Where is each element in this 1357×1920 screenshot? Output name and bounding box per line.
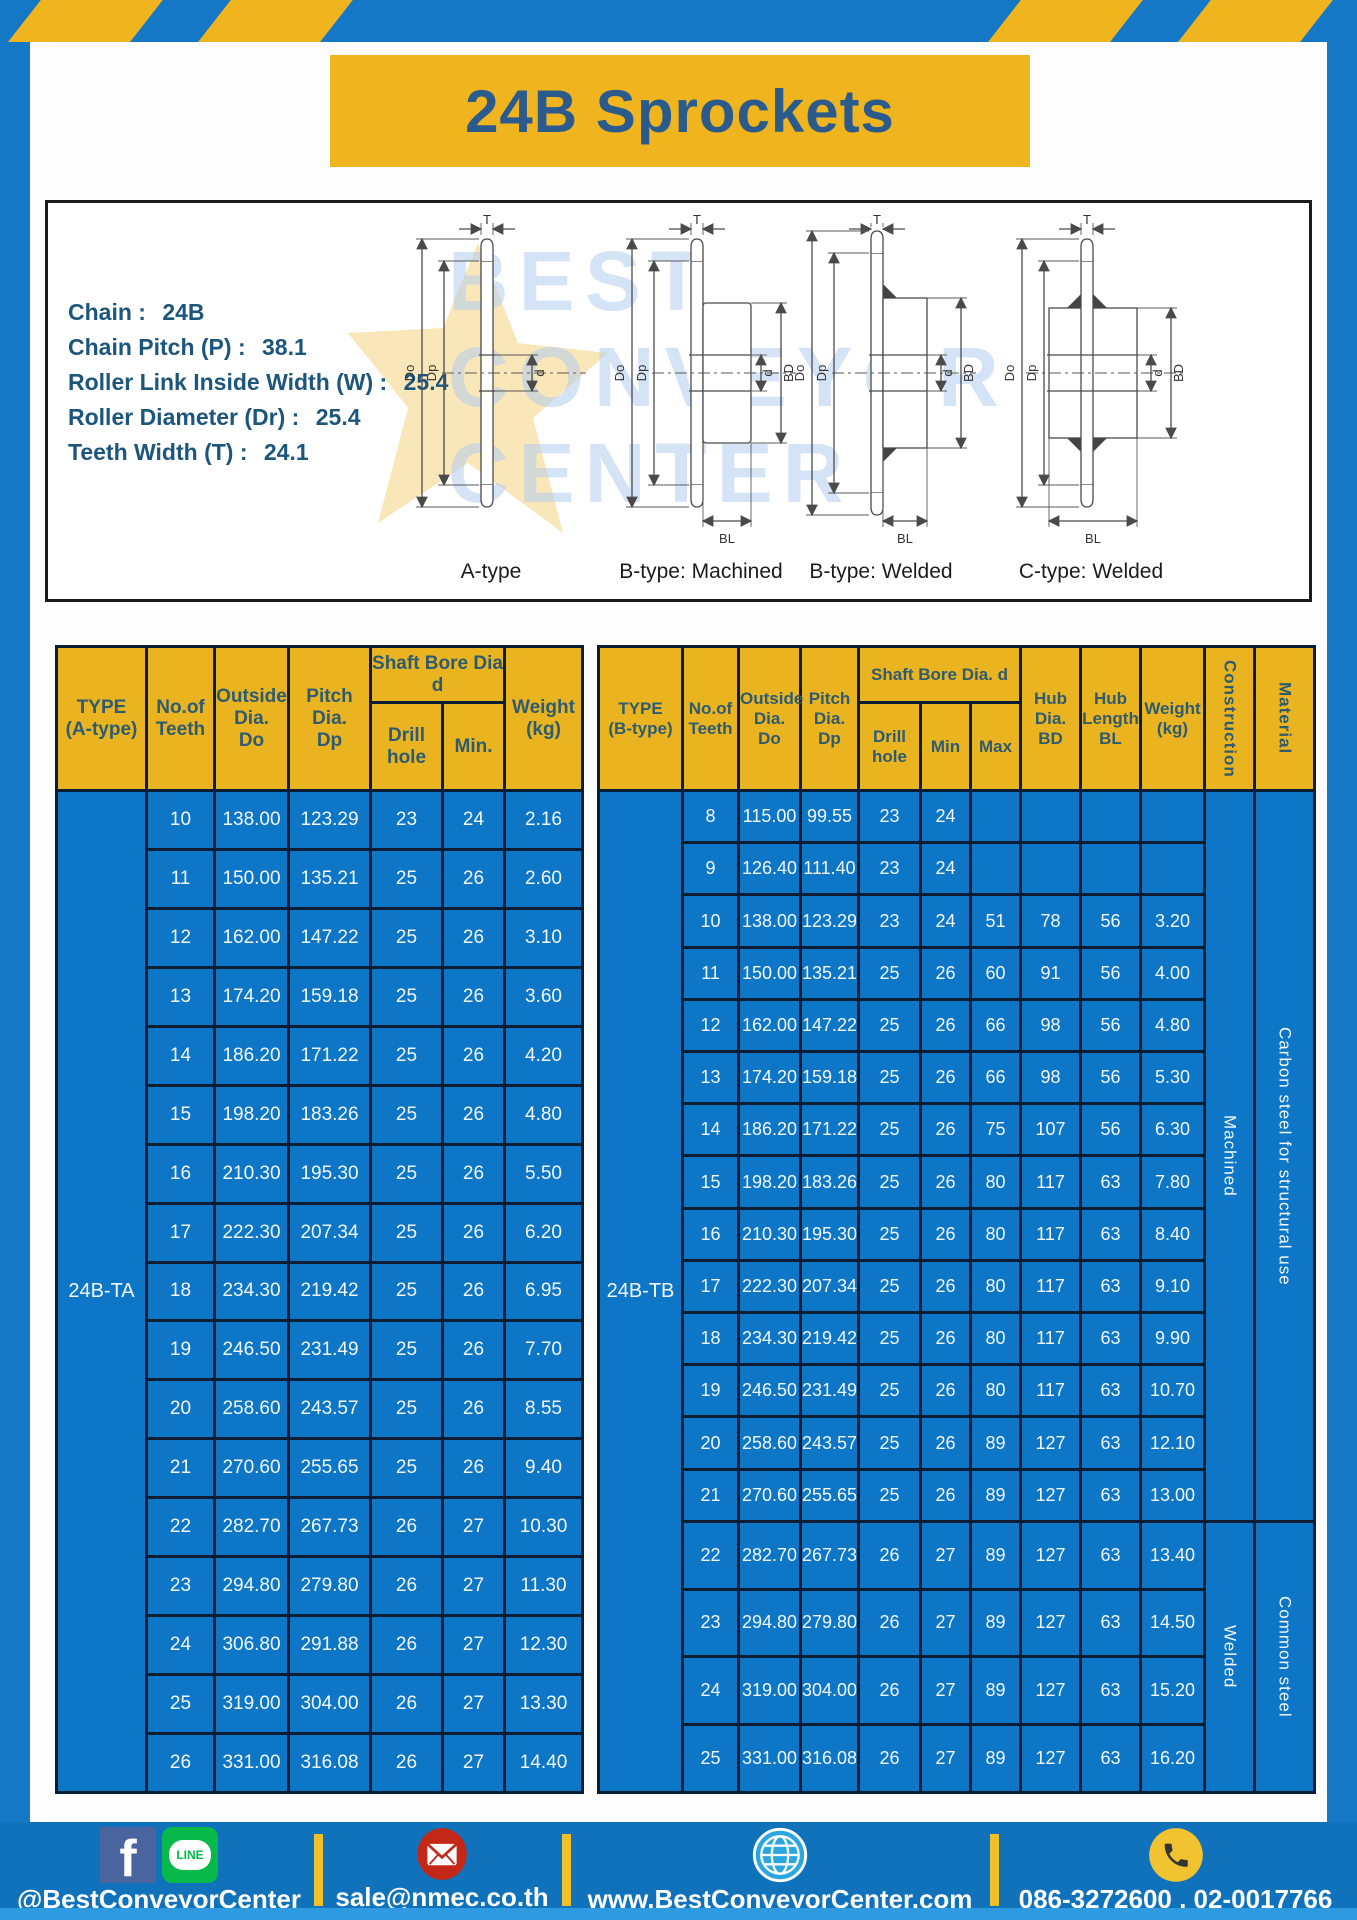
table-cell: 14.40 [505,1734,583,1793]
sprocket-diagram-icon: TDoDpdBDBL [596,213,806,558]
table-cell: 25 [859,1313,921,1365]
table-cell: 107 [1021,1104,1081,1156]
sprocket-diagram-icon: TDoDpdBDBL [986,213,1196,558]
table-cell: 89 [971,1469,1021,1521]
col-header-teeth: No.of Teeth [683,647,739,791]
globe-icon[interactable] [752,1827,808,1883]
table-cell: 331.00 [739,1725,801,1793]
table-cell: 25 [371,1262,443,1321]
table-cell: 26 [921,1469,971,1521]
table-cell: 186.20 [739,1104,801,1156]
table-cell: 14 [683,1104,739,1156]
sprocket-drawing-c-welded: TDoDpdBDBL C-type: Welded [986,213,1196,584]
table-cell: 25 [371,1085,443,1144]
table-cell: 115.00 [739,791,801,843]
table-cell: 26 [443,1321,505,1380]
drawing-caption: C-type: Welded [986,560,1196,584]
col-header-hub-length: Hub Length BL [1081,647,1141,791]
hazard-stripe [1178,0,1333,42]
table-cell: 6.95 [505,1262,583,1321]
table-cell: 26 [921,947,971,999]
table-cell: 304.00 [289,1675,371,1734]
col-header-material: Material [1255,647,1315,791]
table-cell: 27 [443,1616,505,1675]
table-cell: 3.20 [1141,895,1205,947]
table-cell: 24 [921,791,971,843]
table-cell: 26 [921,1260,971,1312]
table-cell: 123.29 [801,895,859,947]
table-cell: 258.60 [739,1417,801,1469]
table-cell: 18 [147,1262,215,1321]
svg-text:Dp: Dp [1024,365,1039,382]
spec-value: 38.1 [262,334,307,360]
table-cell: 13.00 [1141,1469,1205,1521]
table-cell: 267.73 [289,1498,371,1557]
col-header-teeth: No.of Teeth [147,647,215,791]
line-icon[interactable]: LINE [162,1827,218,1883]
table-cell: 60 [971,947,1021,999]
table-cell: 56 [1081,1104,1141,1156]
table-cell: 127 [1021,1657,1081,1725]
facebook-icon[interactable]: f [100,1827,156,1883]
table-cell: 26 [371,1616,443,1675]
table-cell: 222.30 [215,1203,289,1262]
table-cell: 25 [371,967,443,1026]
sprocket-diagram-icon: TDoDpd [386,213,596,558]
table-cell: 111.40 [801,843,859,895]
table-cell: 8 [683,791,739,843]
table-cell: 117 [1021,1208,1081,1260]
table-cell: 23 [859,791,921,843]
table-cell: 234.30 [215,1262,289,1321]
table-cell: 11 [683,947,739,999]
table-cell: 51 [971,895,1021,947]
page-title-text: 24B Sprockets [465,77,895,146]
table-cell: 12.10 [1141,1417,1205,1469]
svg-text:d: d [532,369,547,376]
col-header-shaft-bore: Shaft Bore Dia. d [859,647,1021,703]
table-cell: 20 [683,1417,739,1469]
table-cell: 66 [971,999,1021,1051]
table-cell: 246.50 [215,1321,289,1380]
table-cell: 117 [1021,1313,1081,1365]
table-cell: 17 [147,1203,215,1262]
table-cell: 25 [859,1365,921,1417]
table-cell: 10 [683,895,739,947]
table-cell: 25 [371,1026,443,1085]
table-cell: 26 [147,1734,215,1793]
table-cell: 219.42 [801,1313,859,1365]
sprocket-drawing-b-machined: TDoDpdBDBL B-type: Machined [596,213,806,584]
table-cell: 13 [683,1052,739,1104]
table-cell: 19 [683,1365,739,1417]
table-cell: 25 [683,1725,739,1793]
col-header-max: Max [971,703,1021,791]
table-cell: 27 [443,1498,505,1557]
table-cell: 26 [921,999,971,1051]
type-cell: 24B-TB [599,791,683,1793]
table-cell: 159.18 [289,967,371,1026]
table-cell: 294.80 [215,1557,289,1616]
drawing-caption: B-type: Machined [596,560,806,584]
table-cell: 127 [1021,1417,1081,1469]
table-cell: 14 [147,1026,215,1085]
table-cell: 23 [371,791,443,850]
table-cell: 26 [443,1203,505,1262]
table-cell: 219.42 [289,1262,371,1321]
hazard-stripe [8,0,163,42]
table-cell: 25 [371,908,443,967]
table-cell: 26 [443,1026,505,1085]
table-cell: 25 [371,1321,443,1380]
sprocket-diagram-icon: TDoDpdBDBL [776,213,986,558]
table-cell: 162.00 [739,999,801,1051]
table-cell: 26 [921,1417,971,1469]
table-cell: 25 [147,1675,215,1734]
col-header-drill-hole: Drill hole [371,703,443,791]
table-cell: 10.30 [505,1498,583,1557]
table-cell: 25 [859,1208,921,1260]
table-cell: 25 [859,1417,921,1469]
page-title: 24B Sprockets [330,55,1030,167]
table-cell: 127 [1021,1589,1081,1657]
table-row: 24B-TA10138.00123.2923242.16 [57,791,583,850]
table-cell: 23 [147,1557,215,1616]
table-cell: 234.30 [739,1313,801,1365]
table-cell: 9.10 [1141,1260,1205,1312]
table-cell: 24 [443,791,505,850]
table-cell: 195.30 [801,1208,859,1260]
table-cell: 89 [971,1521,1021,1589]
table-cell: 210.30 [739,1208,801,1260]
table-cell: 319.00 [215,1675,289,1734]
table-cell: 3.10 [505,908,583,967]
table-cell: 186.20 [215,1026,289,1085]
table-cell: 319.00 [739,1657,801,1725]
table-row: 22282.70267.732627891276313.40WeldedComm… [599,1521,1315,1589]
table-cell: 25 [859,1260,921,1312]
svg-text:Do: Do [1002,365,1017,382]
table-cell: 198.20 [739,1156,801,1208]
table-cell: 26 [921,1313,971,1365]
table-cell: 13 [147,967,215,1026]
table-cell: 14.50 [1141,1589,1205,1657]
table-cell: 63 [1081,1156,1141,1208]
sprocket-drawing-a-type: TDoDpd A-type [386,213,596,584]
table-cell: 17 [683,1260,739,1312]
table-cell: 27 [443,1675,505,1734]
table-cell: 11.30 [505,1557,583,1616]
table-cell: 147.22 [801,999,859,1051]
spec-value: 24B [162,299,204,325]
table-cell: 267.73 [801,1521,859,1589]
table-cell: 2.16 [505,791,583,850]
table-cell: 56 [1081,999,1141,1051]
table-cell: 25 [371,1203,443,1262]
spec-value: 24.1 [264,439,309,465]
table-cell: 27 [921,1589,971,1657]
table-cell: 63 [1081,1417,1141,1469]
table-cell: 7.80 [1141,1156,1205,1208]
table-cell: 270.60 [215,1439,289,1498]
table-cell: 24 [921,895,971,947]
table-cell: 4.80 [505,1085,583,1144]
table-cell: 127 [1021,1469,1081,1521]
svg-text:BL: BL [1085,531,1101,546]
table-cell: 63 [1081,1469,1141,1521]
table-cell: 26 [921,1156,971,1208]
table-cell: 12.30 [505,1616,583,1675]
table-cell: 23 [859,895,921,947]
spec-label: Roller Diameter (Dr) [68,404,285,430]
footer-social-section: f LINE @BestConveyorCenter [0,1822,318,1908]
table-cell: 26 [921,1052,971,1104]
svg-text:Do: Do [792,365,807,382]
table-cell: 26 [443,849,505,908]
table-cell: 63 [1081,1657,1141,1725]
col-header-outside-dia: Outside Dia. Do [215,647,289,791]
material-cell: Carbon steel for structural use [1255,791,1315,1522]
table-cell: 22 [683,1521,739,1589]
diagram-panel: BEST CONVEYOR CENTER Chain : 24BChain Pi… [45,200,1312,602]
table-cell [971,843,1021,895]
table-cell: 24 [683,1657,739,1725]
table-cell: 80 [971,1313,1021,1365]
table-cell: 6.20 [505,1203,583,1262]
table-cell: 138.00 [739,895,801,947]
svg-text:BL: BL [719,531,735,546]
table-cell: 13.30 [505,1675,583,1734]
table-cell: 231.49 [289,1321,371,1380]
drawing-caption: B-type: Welded [776,560,986,584]
table-cell: 13.40 [1141,1521,1205,1589]
table-cell: 89 [971,1589,1021,1657]
table-cell: 26 [921,1104,971,1156]
table-cell: 25 [371,1380,443,1439]
hazard-stripe [988,0,1143,42]
top-hazard-bar [0,0,1357,42]
table-cell: 9.90 [1141,1313,1205,1365]
table-cell: 12 [147,908,215,967]
table-cell: 18 [683,1313,739,1365]
table-cell: 150.00 [215,849,289,908]
table-cell: 25 [859,999,921,1051]
table-cell: 25 [859,1156,921,1208]
table-cell: 63 [1081,1313,1141,1365]
email-icon[interactable] [415,1827,469,1881]
svg-text:Dp: Dp [424,365,439,382]
table-cell: 63 [1081,1521,1141,1589]
table-cell: 26 [921,1208,971,1260]
table-cell: 26 [443,1085,505,1144]
svg-text:d: d [1150,369,1165,376]
table-cell: 162.00 [215,908,289,967]
svg-text:T: T [1083,213,1091,227]
table-cell: 25 [859,1469,921,1521]
table-cell: 246.50 [739,1365,801,1417]
table-cell: 282.70 [215,1498,289,1557]
table-cell: 20 [147,1380,215,1439]
table-cell: 117 [1021,1260,1081,1312]
table-cell [1021,791,1081,843]
table-cell: 16 [147,1144,215,1203]
table-cell: 63 [1081,1589,1141,1657]
sprocket-drawing-b-welded: TDoDpdBDBL B-type: Welded [776,213,986,584]
table-cell: 331.00 [215,1734,289,1793]
drawing-caption: A-type [386,560,596,584]
table-cell: 56 [1081,947,1141,999]
table-cell: 25 [859,1052,921,1104]
table-cell: 23 [859,843,921,895]
col-header-weight: Weight (kg) [505,647,583,791]
table-cell [1021,843,1081,895]
hazard-stripe [198,0,353,42]
col-header-shaft-bore: Shaft Bore Dia d [371,647,505,703]
col-header-hub-dia: Hub Dia. BD [1021,647,1081,791]
table-cell: 5.50 [505,1144,583,1203]
col-header-min: Min [921,703,971,791]
table-cell: 207.34 [801,1260,859,1312]
table-cell: 9 [683,843,739,895]
table-cell: 282.70 [739,1521,801,1589]
table-cell: 195.30 [289,1144,371,1203]
table-cell: 89 [971,1657,1021,1725]
table-cell: 210.30 [215,1144,289,1203]
table-cell: 80 [971,1365,1021,1417]
footer-bottom-strip [0,1908,1357,1920]
table-cell: 80 [971,1260,1021,1312]
table-cell: 15 [683,1156,739,1208]
table-cell: 159.18 [801,1052,859,1104]
table-cell: 117 [1021,1156,1081,1208]
table-cell: 8.40 [1141,1208,1205,1260]
spec-value: 25.4 [316,404,361,430]
table-cell: 25 [371,849,443,908]
page-frame: 24B Sprockets BEST CONVEYOR CENTER Chain… [0,0,1357,1920]
table-cell: 291.88 [289,1616,371,1675]
svg-text:BD: BD [961,364,976,382]
table-cell: 7.70 [505,1321,583,1380]
table-cell: 21 [683,1469,739,1521]
col-header-drill-hole: Drill hole [859,703,921,791]
table-cell: 198.20 [215,1085,289,1144]
table-cell: 183.26 [289,1085,371,1144]
table-cell: 27 [443,1734,505,1793]
table-cell: 4.00 [1141,947,1205,999]
table-cell: 99.55 [801,791,859,843]
col-header-pitch-dia: Pitch Dia. Dp [801,647,859,791]
svg-text:T: T [483,213,491,227]
table-cell: 63 [1081,1365,1141,1417]
table-cell: 27 [443,1557,505,1616]
table-cell: 16.20 [1141,1725,1205,1793]
table-cell: 4.80 [1141,999,1205,1051]
table-cell: 11 [147,849,215,908]
table-cell: 25 [371,1439,443,1498]
table-cell: 91 [1021,947,1081,999]
table-cell: 174.20 [739,1052,801,1104]
table-cell [1141,791,1205,843]
table-cell [1081,791,1141,843]
table-cell: 138.00 [215,791,289,850]
table-cell: 304.00 [801,1657,859,1725]
svg-text:Do: Do [402,365,417,382]
phone-icon[interactable] [1148,1827,1204,1883]
col-header-type: TYPE (B-type) [599,647,683,791]
table-cell: 171.22 [289,1026,371,1085]
table-cell: 306.80 [215,1616,289,1675]
table-cell: 171.22 [801,1104,859,1156]
footer-website-section: www.BestConveyorCenter.com [566,1822,994,1908]
table-cell: 15 [147,1085,215,1144]
table-cell: 270.60 [739,1469,801,1521]
svg-text:BD: BD [1171,364,1186,382]
table-cell: 16 [683,1208,739,1260]
table-cell: 255.65 [801,1469,859,1521]
table-cell [1081,843,1141,895]
table-cell: 89 [971,1725,1021,1793]
col-header-type: TYPE (A-type) [57,647,147,791]
svg-text:BL: BL [897,531,913,546]
footer-phone-section: 086-3272600 , 02-0017766 [994,1822,1357,1908]
table-cell: 26 [859,1589,921,1657]
spec-label: Roller Link Inside Width (W) [68,369,373,395]
table-cell: 3.60 [505,967,583,1026]
table-cell: 63 [1081,1260,1141,1312]
table-cell: 26 [371,1734,443,1793]
table-cell: 26 [443,1439,505,1498]
table-cell: 127 [1021,1725,1081,1793]
table-cell: 294.80 [739,1589,801,1657]
table-cell: 24 [921,843,971,895]
content-sheet: 24B Sprockets BEST CONVEYOR CENTER Chain… [30,42,1327,1822]
svg-text:Dp: Dp [814,365,829,382]
table-cell [1141,843,1205,895]
table-cell: 10.70 [1141,1365,1205,1417]
table-cell: 135.21 [289,849,371,908]
table-cell: 126.40 [739,843,801,895]
table-cell: 279.80 [289,1557,371,1616]
table-cell: 6.30 [1141,1104,1205,1156]
table-cell: 25 [371,1144,443,1203]
footer-contact-bar: f LINE @BestConveyorCenter sale@nmec.co.… [0,1822,1357,1920]
table-cell: 22 [147,1498,215,1557]
table-cell: 258.60 [215,1380,289,1439]
table-cell: 63 [1081,1208,1141,1260]
spec-label: Teeth Width (T) [68,439,233,465]
table-cell: 26 [859,1521,921,1589]
table-cell: 26 [443,1262,505,1321]
table-cell: 231.49 [801,1365,859,1417]
table-cell: 135.21 [801,947,859,999]
table-cell [971,791,1021,843]
table-cell: 117 [1021,1365,1081,1417]
construction-cell: Machined [1205,791,1255,1522]
table-cell: 15.20 [1141,1657,1205,1725]
svg-text:d: d [940,369,955,376]
table-cell: 27 [921,1725,971,1793]
table-cell: 21 [147,1439,215,1498]
table-cell: 56 [1081,895,1141,947]
table-cell: 5.30 [1141,1052,1205,1104]
svg-text:Dp: Dp [634,365,649,382]
table-cell: 207.34 [289,1203,371,1262]
table-cell: 174.20 [215,967,289,1026]
table-cell: 123.29 [289,791,371,850]
table-cell: 56 [1081,1052,1141,1104]
table-cell: 147.22 [289,908,371,967]
table-cell: 2.60 [505,849,583,908]
